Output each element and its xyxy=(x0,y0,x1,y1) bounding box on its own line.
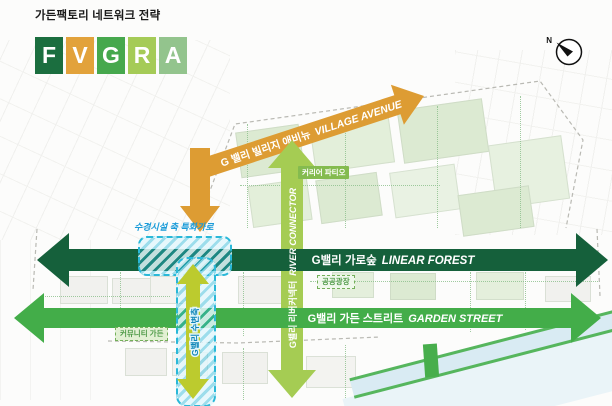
map-canvas: G 밸리 빌리지 애비뉴VILLAGE AVENUE G밸리 가로숲LINEAR… xyxy=(0,0,612,406)
logo-letter-r: R xyxy=(128,37,156,74)
page-title: 가든팩토리 네트워크 전략 xyxy=(35,7,160,23)
fvgra-logo: F V G R A xyxy=(35,37,187,74)
logo-letter-a: A xyxy=(159,37,187,74)
river-connector-label: G밸리 리버커넥터RIVER CONNECTOR xyxy=(287,187,298,348)
north-compass-icon: N xyxy=(546,36,581,65)
public-plaza-label: 공공광장 xyxy=(317,275,355,289)
compass-n-label: N xyxy=(546,36,552,45)
waterfront-axis-label: G밸리 수변축 xyxy=(190,308,200,356)
logo-letter-g: G xyxy=(97,37,125,74)
career-patio-label: 커리어 파티오 xyxy=(298,166,349,179)
logo-letter-f: F xyxy=(35,37,63,74)
water-axis-label: 수경시설 축 특화가로 xyxy=(134,220,214,233)
community-garden-label: 커뮤니티 가든 xyxy=(115,327,168,341)
logo-letter-v: V xyxy=(66,37,94,74)
